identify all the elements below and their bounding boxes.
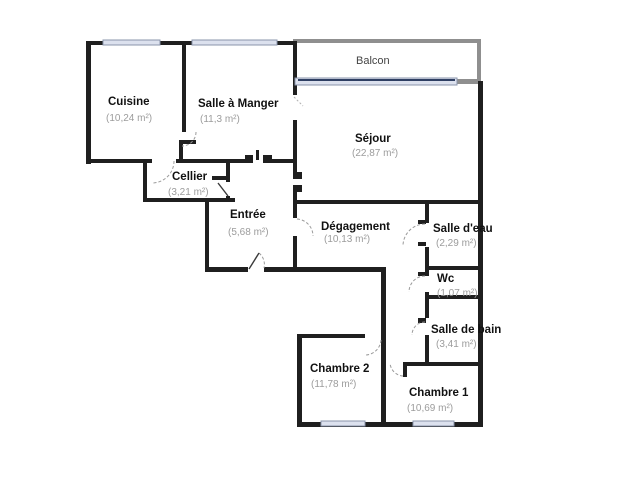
wall bbox=[205, 267, 248, 272]
wall bbox=[297, 334, 365, 338]
door-post bbox=[293, 185, 302, 192]
room-label-sejour: Séjour bbox=[355, 133, 391, 145]
wall bbox=[297, 334, 302, 427]
room-area-chambre-2: (11,78 m²) bbox=[311, 379, 356, 390]
wall bbox=[425, 266, 478, 270]
balcony-wall bbox=[477, 39, 481, 83]
balcony-wall bbox=[293, 39, 481, 43]
window bbox=[321, 421, 365, 426]
room-area-degagement: (10,13 m²) bbox=[324, 234, 370, 245]
floor-plan: Cuisine(10,24 m²)Salle à Manger(11,3 m²)… bbox=[0, 0, 640, 500]
room-label-chambre-1: Chambre 1 bbox=[409, 387, 469, 399]
room-area-wc: (1,07 m²) bbox=[437, 288, 478, 299]
room-label-salle-a-manger: Salle à Manger bbox=[198, 98, 279, 110]
door-post bbox=[245, 155, 253, 163]
room-area-salle-a-manger: (11,3 m²) bbox=[200, 114, 240, 125]
window bbox=[192, 40, 277, 45]
wall bbox=[143, 159, 147, 202]
wall bbox=[293, 161, 297, 172]
door-post bbox=[418, 272, 426, 276]
wall bbox=[381, 267, 386, 427]
wall bbox=[425, 335, 429, 366]
wall bbox=[293, 200, 480, 204]
wall bbox=[86, 159, 152, 163]
room-label-salle-d-eau: Salle d'eau bbox=[433, 223, 493, 235]
wall bbox=[179, 144, 183, 161]
window bbox=[103, 40, 160, 45]
door-post bbox=[418, 242, 426, 246]
wall bbox=[176, 159, 246, 163]
room-label-degagement: Dégagement bbox=[321, 221, 390, 233]
wall bbox=[404, 362, 478, 366]
wall bbox=[293, 41, 297, 95]
door-post bbox=[293, 172, 302, 179]
room-label-entree: Entrée bbox=[230, 209, 266, 221]
room-area-sejour: (22,87 m²) bbox=[352, 148, 398, 159]
wall bbox=[179, 140, 196, 144]
balcony-wall bbox=[455, 79, 478, 84]
wall bbox=[226, 161, 230, 182]
room-label-chambre-2: Chambre 2 bbox=[310, 363, 369, 375]
wall bbox=[182, 41, 186, 132]
room-area-salle-d-eau: (2,29 m²) bbox=[436, 238, 477, 249]
window bbox=[413, 421, 454, 426]
wall bbox=[226, 196, 230, 202]
door-post bbox=[263, 155, 272, 163]
door-post bbox=[212, 176, 226, 180]
room-label-balcon: Balcon bbox=[356, 55, 390, 67]
room-label-cuisine: Cuisine bbox=[108, 96, 150, 108]
door-post bbox=[418, 220, 426, 224]
wall bbox=[264, 267, 383, 272]
wall bbox=[425, 299, 429, 318]
floorplan-page: Cuisine(10,24 m²)Salle à Manger(11,3 m²)… bbox=[0, 0, 640, 500]
room-label-wc: Wc bbox=[437, 273, 455, 285]
wall bbox=[293, 236, 297, 272]
wall bbox=[478, 81, 483, 427]
wall bbox=[293, 120, 297, 161]
room-label-cellier: Cellier bbox=[172, 171, 208, 183]
wall bbox=[425, 247, 429, 268]
door-post bbox=[403, 362, 407, 377]
door-post bbox=[256, 150, 259, 160]
wall bbox=[143, 198, 235, 202]
room-area-cellier: (3,21 m²) bbox=[168, 187, 209, 198]
wall bbox=[293, 204, 297, 218]
room-area-cuisine: (10,24 m²) bbox=[106, 113, 152, 124]
wall bbox=[86, 41, 91, 164]
room-area-salle-de-bain: (3,41 m²) bbox=[436, 339, 477, 350]
room-area-entree: (5,68 m²) bbox=[228, 227, 269, 238]
room-label-salle-de-bain: Salle de bain bbox=[431, 324, 501, 336]
room-area-chambre-1: (10,69 m²) bbox=[407, 403, 453, 414]
wall bbox=[425, 200, 429, 223]
wall bbox=[205, 198, 209, 272]
